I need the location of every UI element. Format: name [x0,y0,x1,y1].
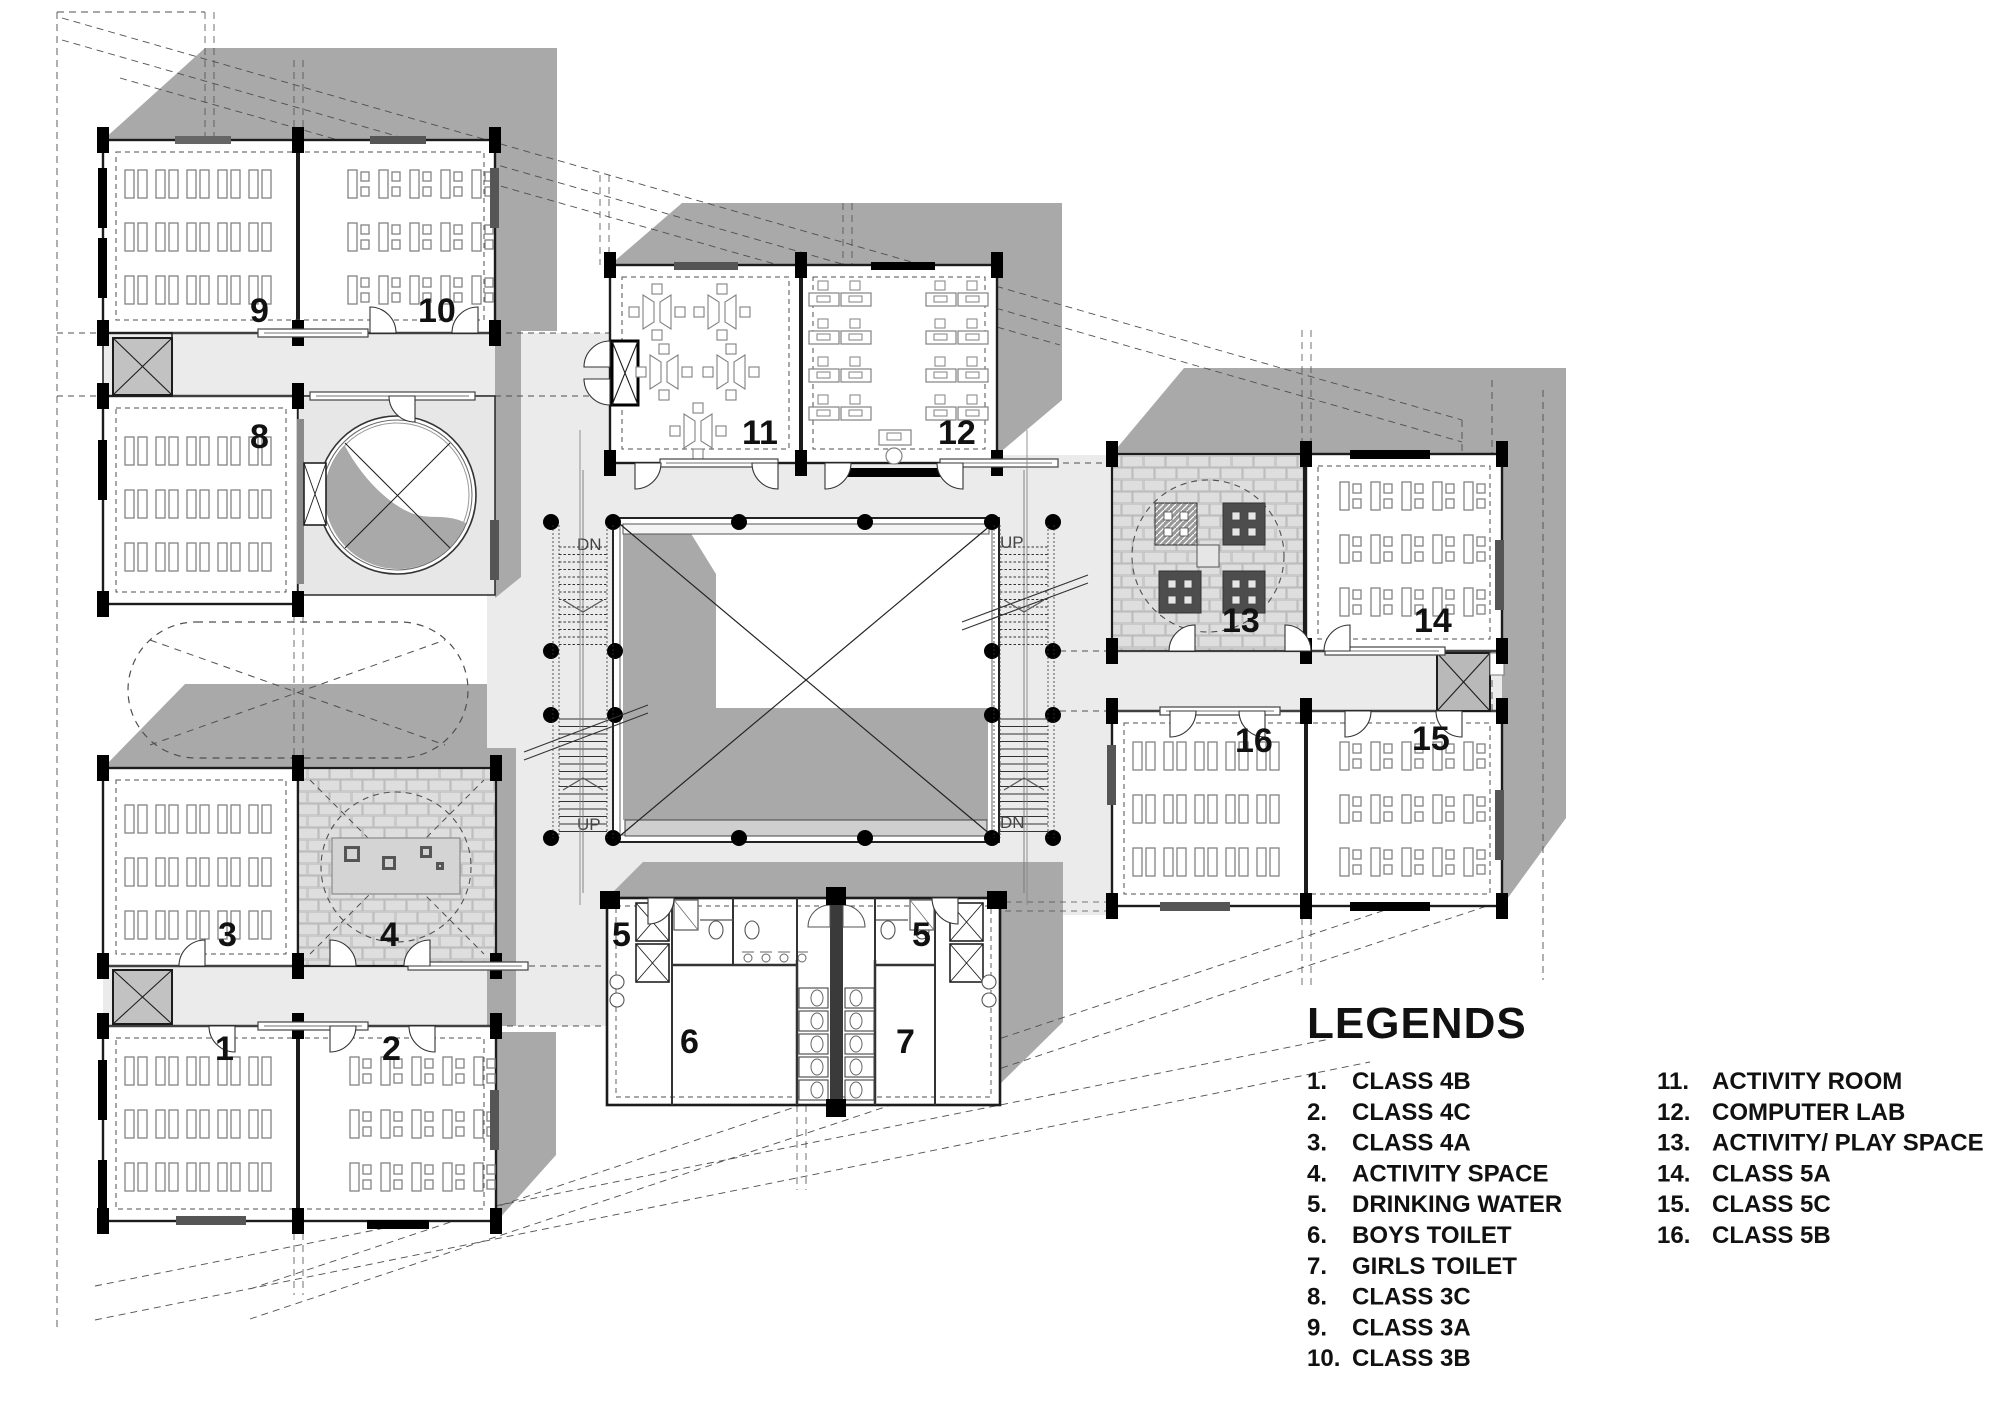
svg-text:CLASS 5C: CLASS 5C [1712,1191,1831,1218]
svg-text:10: 10 [418,292,456,330]
svg-text:13: 13 [1222,602,1260,640]
svg-text:DN: DN [577,535,602,554]
svg-text:UP: UP [577,815,601,834]
svg-text:CLASS 3C: CLASS 3C [1352,1284,1471,1311]
svg-text:1.: 1. [1307,1068,1327,1095]
svg-text:5: 5 [912,916,931,954]
svg-text:4: 4 [380,916,399,954]
svg-text:ACTIVITY/ PLAY SPACE: ACTIVITY/ PLAY SPACE [1712,1130,1984,1157]
svg-text:2: 2 [382,1030,401,1068]
svg-text:8.: 8. [1307,1284,1327,1311]
svg-text:DRINKING WATER: DRINKING WATER [1352,1191,1562,1218]
svg-text:GIRLS TOILET: GIRLS TOILET [1352,1253,1517,1280]
svg-text:ACTIVITY ROOM: ACTIVITY ROOM [1712,1068,1902,1095]
svg-text:CLASS 5A: CLASS 5A [1712,1160,1831,1187]
svg-text:BOYS TOILET: BOYS TOILET [1352,1222,1512,1249]
svg-text:7.: 7. [1307,1253,1327,1280]
svg-text:11.: 11. [1657,1068,1689,1095]
svg-text:5: 5 [612,916,631,954]
svg-text:3: 3 [218,916,237,954]
svg-text:CLASS 4C: CLASS 4C [1352,1099,1471,1126]
svg-text:CLASS 3A: CLASS 3A [1352,1314,1471,1341]
svg-text:CLASS 5B: CLASS 5B [1712,1222,1831,1249]
svg-text:12: 12 [938,414,976,452]
svg-text:8: 8 [250,418,269,456]
svg-text:15.: 15. [1657,1191,1690,1218]
svg-text:COMPUTER LAB: COMPUTER LAB [1712,1099,1905,1126]
svg-text:6.: 6. [1307,1222,1327,1249]
svg-text:6: 6 [680,1023,699,1061]
svg-text:10.: 10. [1307,1345,1340,1372]
svg-text:DN: DN [1000,813,1025,832]
svg-text:2.: 2. [1307,1099,1327,1126]
svg-text:CLASS 4B: CLASS 4B [1352,1068,1471,1095]
svg-text:9.: 9. [1307,1314,1327,1341]
svg-text:14: 14 [1414,602,1452,640]
svg-text:16: 16 [1235,722,1273,760]
svg-text:1: 1 [215,1030,234,1068]
svg-text:ACTIVITY SPACE: ACTIVITY SPACE [1352,1160,1548,1187]
svg-text:14.: 14. [1657,1160,1690,1187]
svg-text:11: 11 [742,414,778,452]
svg-text:9: 9 [250,292,269,330]
svg-text:4.: 4. [1307,1160,1327,1187]
svg-text:7: 7 [896,1023,915,1061]
svg-text:LEGENDS: LEGENDS [1307,999,1527,1048]
svg-text:13.: 13. [1657,1130,1690,1157]
svg-text:15: 15 [1412,720,1450,758]
svg-text:12.: 12. [1657,1099,1690,1126]
svg-text:UP: UP [1000,533,1024,552]
svg-text:5.: 5. [1307,1191,1327,1218]
svg-text:CLASS 3B: CLASS 3B [1352,1345,1471,1372]
svg-text:CLASS 4A: CLASS 4A [1352,1130,1471,1157]
svg-text:3.: 3. [1307,1130,1327,1157]
svg-text:16.: 16. [1657,1222,1690,1249]
